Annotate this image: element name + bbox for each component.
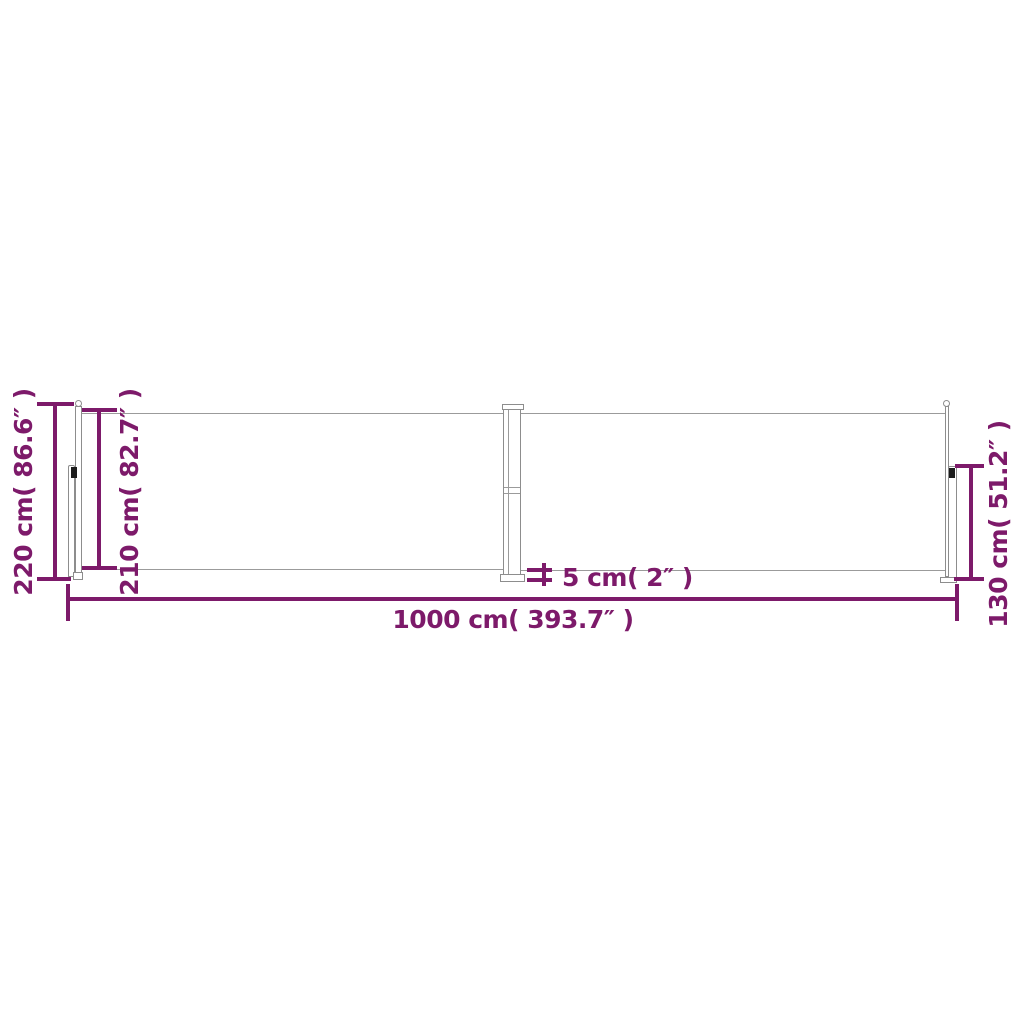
dim-220-tick-bottom — [37, 577, 71, 581]
dim-210-tick-top — [82, 408, 117, 412]
right-pole-top-cap — [943, 400, 950, 407]
awning-fabric-right-panel — [520, 413, 947, 571]
center-post-joint-line-upper — [504, 487, 520, 488]
dim-1000-tick-right — [955, 584, 959, 621]
dim-130-line — [969, 466, 973, 580]
center-post-joint-line-lower — [504, 493, 520, 494]
dim-5-bracket-top-bar — [527, 568, 552, 572]
left-cassette-top-cap — [75, 400, 82, 407]
dim-220-label: 220 cm( 86.6″ ) — [10, 372, 38, 612]
dim-130-tick-top — [955, 464, 984, 468]
dim-5-bracket-stem — [542, 563, 546, 586]
dim-210-tick-bottom — [82, 566, 117, 570]
center-post — [503, 409, 521, 575]
left-handle-clip — [71, 467, 77, 478]
awning-fabric-left-panel — [81, 413, 505, 570]
center-post-highlight-line — [508, 410, 509, 574]
product-dimension-diagram: 220 cm( 86.6″ ) 210 cm( 82.7″ ) 130 cm( … — [0, 0, 1024, 1024]
dim-1000-tick-left — [66, 584, 70, 621]
left-cassette-post — [75, 406, 82, 577]
dim-130-tick-bottom — [954, 577, 984, 581]
dim-210-label: 210 cm( 82.7″ ) — [116, 372, 144, 612]
dim-220-tick-top — [37, 402, 74, 406]
right-handle-clip — [949, 468, 955, 478]
dim-210-line — [97, 410, 101, 570]
right-handle-bar — [948, 466, 957, 578]
dim-130-label: 130 cm( 51.2″ ) — [985, 404, 1013, 644]
dim-5-label: 5 cm( 2″ ) — [562, 564, 693, 592]
dim-1000-label: 1000 cm( 393.7″ ) — [313, 606, 713, 634]
dim-1000-line — [68, 597, 958, 601]
dim-220-line — [53, 404, 57, 580]
left-handle-bar — [68, 465, 75, 577]
center-post-bottom-cap — [500, 574, 525, 582]
left-cassette-foot — [73, 572, 83, 580]
dim-5-bracket-bottom-bar — [527, 578, 552, 582]
